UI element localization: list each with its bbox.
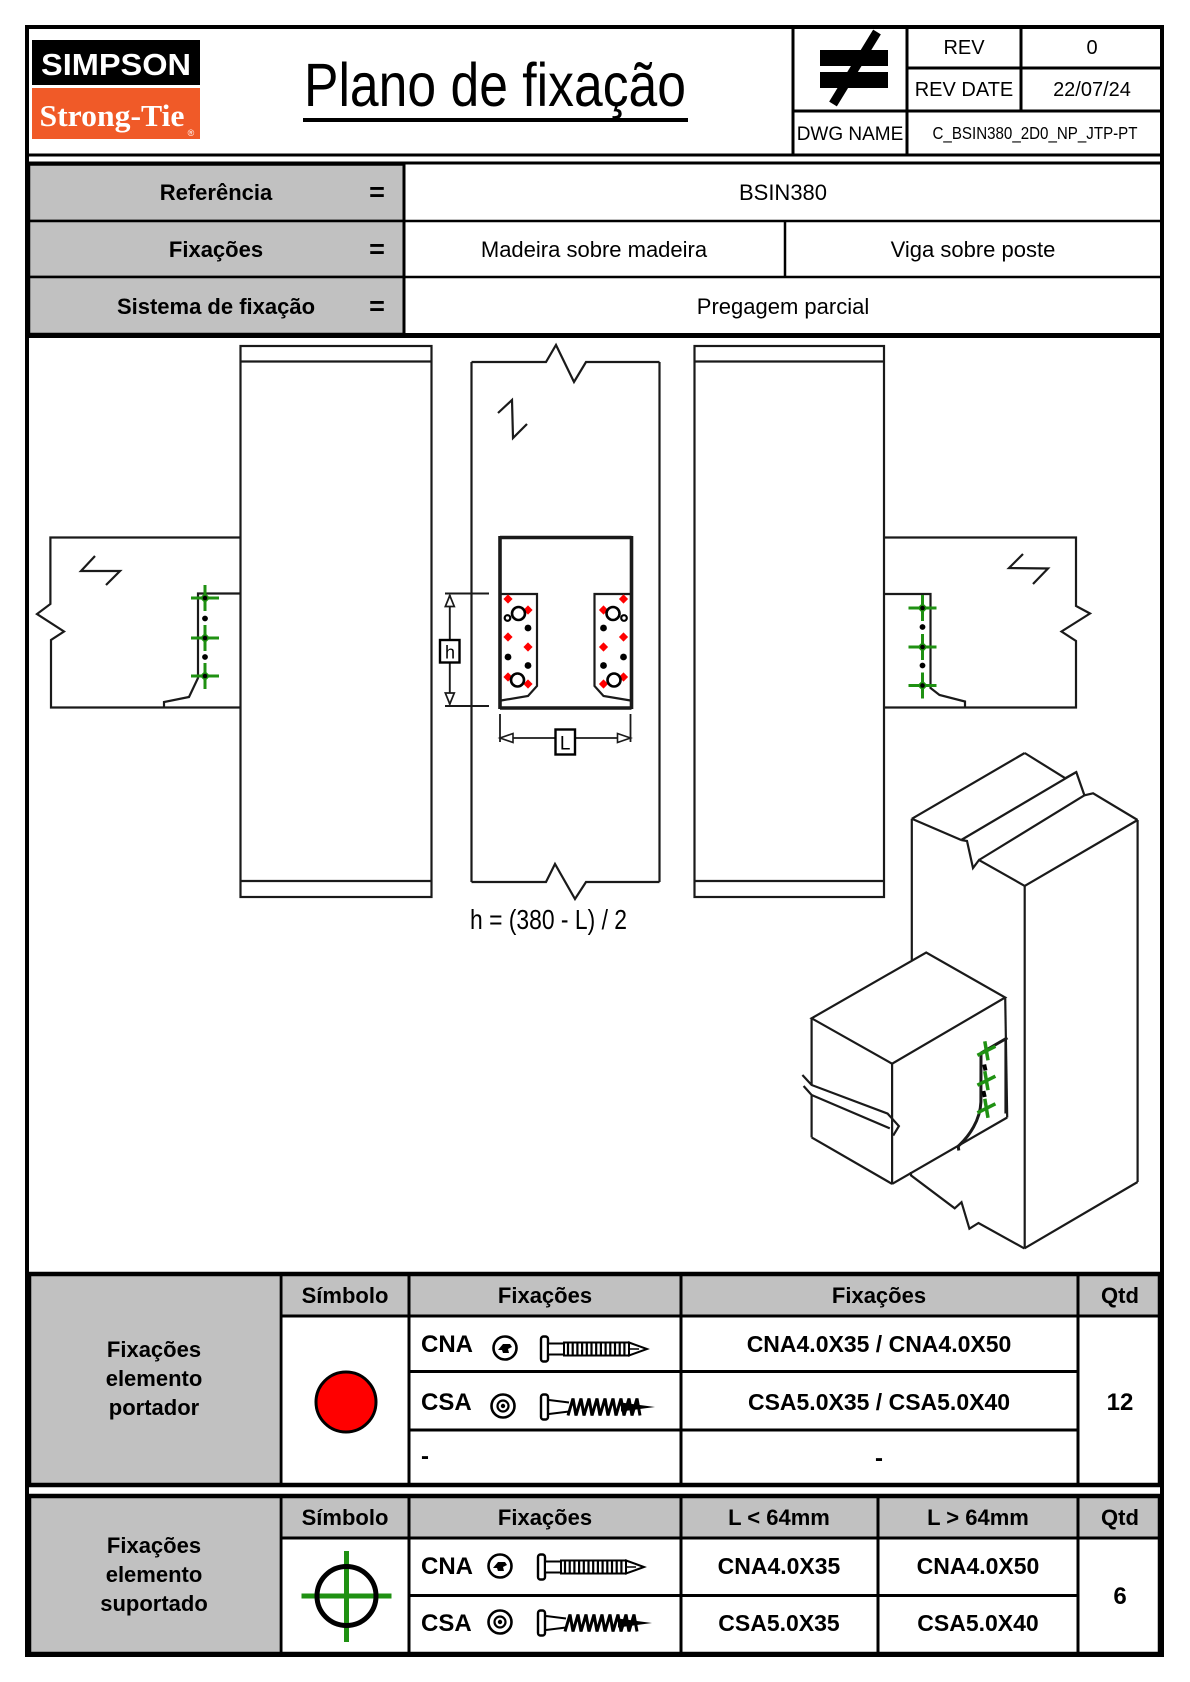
svg-text:elemento: elemento	[106, 1562, 203, 1587]
svg-text:12: 12	[1107, 1389, 1134, 1416]
svg-text:Símbolo: Símbolo	[302, 1283, 389, 1308]
svg-text:L: L	[560, 734, 571, 755]
svg-text:Qtd: Qtd	[1101, 1283, 1139, 1308]
svg-text:CSA5.0X35 / CSA5.0X40: CSA5.0X35 / CSA5.0X40	[748, 1389, 1010, 1415]
svg-text:h = (380 - L) / 2: h = (380 - L) / 2	[470, 904, 627, 935]
svg-text:Fixações: Fixações	[107, 1533, 201, 1558]
svg-text:REV DATE: REV DATE	[915, 79, 1014, 101]
svg-text:22/07/24: 22/07/24	[1053, 79, 1131, 101]
svg-text:CSA5.0X35: CSA5.0X35	[718, 1610, 840, 1636]
svg-text:Pregagem parcial: Pregagem parcial	[697, 294, 869, 319]
svg-text:=: =	[369, 234, 385, 264]
svg-text:REV: REV	[943, 37, 985, 59]
svg-text:portador: portador	[109, 1395, 200, 1420]
svg-text:CNA4.0X35 / CNA4.0X50: CNA4.0X35 / CNA4.0X50	[747, 1331, 1012, 1357]
svg-text:®: ®	[188, 128, 195, 138]
svg-text:Sistema de fixação: Sistema de fixação	[117, 294, 315, 319]
svg-text:Fixações: Fixações	[498, 1283, 592, 1308]
svg-text:0: 0	[1086, 37, 1097, 59]
svg-text:L < 64mm: L < 64mm	[728, 1505, 830, 1530]
svg-text:DWG NAME: DWG NAME	[797, 124, 904, 145]
svg-text:=: =	[369, 291, 385, 321]
svg-text:CNA: CNA	[421, 1553, 473, 1580]
svg-text:Fixações: Fixações	[498, 1505, 592, 1530]
svg-text:C_BSIN380_2D0_NP_JTP-PT: C_BSIN380_2D0_NP_JTP-PT	[933, 123, 1138, 144]
svg-text:CNA4.0X50: CNA4.0X50	[917, 1553, 1040, 1579]
svg-text:SIMPSON: SIMPSON	[41, 47, 191, 82]
svg-text:CSA5.0X40: CSA5.0X40	[917, 1610, 1038, 1636]
svg-text:L > 64mm: L > 64mm	[927, 1505, 1029, 1530]
svg-text:-: -	[875, 1445, 883, 1472]
svg-text:Símbolo: Símbolo	[302, 1505, 389, 1530]
svg-text:Strong-Tie: Strong-Tie	[40, 98, 185, 133]
svg-text:Madeira sobre madeira: Madeira sobre madeira	[481, 237, 708, 262]
svg-text:Qtd: Qtd	[1101, 1505, 1139, 1530]
svg-text:Plano de fixação: Plano de fixação	[304, 51, 686, 119]
svg-text:Fixações: Fixações	[832, 1283, 926, 1308]
svg-text:suportado: suportado	[100, 1591, 208, 1616]
svg-text:BSIN380: BSIN380	[739, 180, 827, 205]
svg-text:CSA: CSA	[421, 1610, 472, 1637]
svg-text:CSA: CSA	[421, 1389, 472, 1416]
svg-text:Referência: Referência	[160, 180, 273, 205]
svg-text:elemento: elemento	[106, 1366, 203, 1391]
svg-text:Viga sobre poste: Viga sobre poste	[891, 237, 1056, 262]
svg-text:CNA: CNA	[421, 1331, 473, 1358]
svg-text:CNA4.0X35: CNA4.0X35	[718, 1553, 841, 1579]
svg-text:6: 6	[1113, 1583, 1126, 1610]
svg-text:Fixações: Fixações	[107, 1337, 201, 1362]
svg-text:h: h	[445, 643, 455, 663]
svg-text:-: -	[421, 1443, 429, 1470]
svg-text:Fixações: Fixações	[169, 237, 263, 262]
svg-text:=: =	[369, 177, 385, 207]
